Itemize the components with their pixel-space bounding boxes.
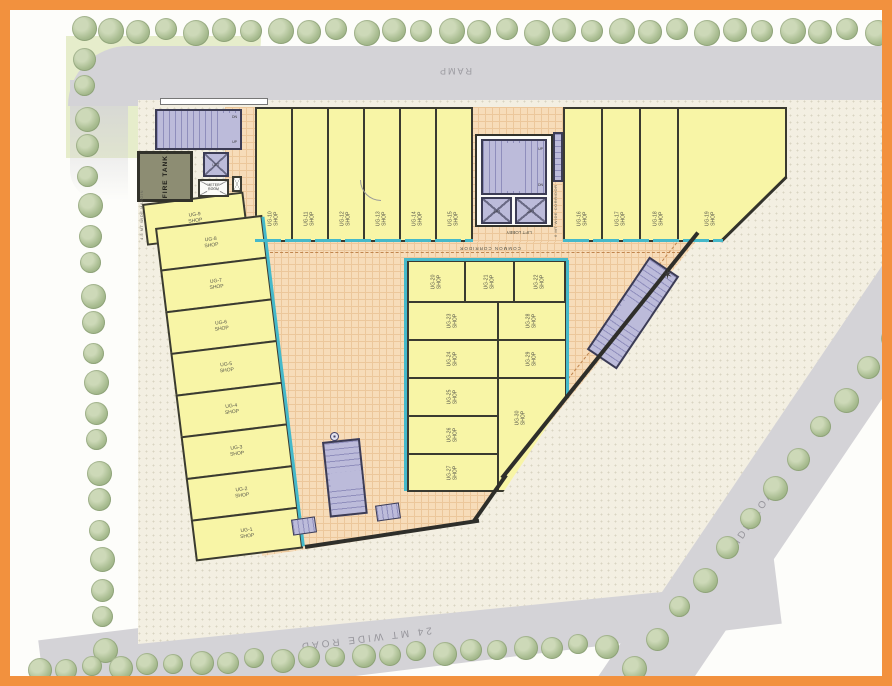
lift: LIFT [481,197,512,224]
shop-unit: UG-22 SHOP [513,260,566,303]
shop-label: UG-30 SHOP [516,410,528,425]
shop-unit: UG-17 SHOP [601,107,641,242]
shop-label: UG-25 SHOP [447,390,459,405]
shop-label: UG-28 SHOP [526,314,538,329]
lift-label: LIFT [212,163,219,167]
shop-label: UG-11 SHOP [304,211,316,225]
shop-unit: UG-21 SHOP [464,260,515,303]
shop-label: UG-6 SHOP [214,320,229,333]
tree-icon [92,606,113,627]
lift-lobby-label: LIFT LOBBY [488,230,550,235]
tree-icon [666,18,688,40]
stair-dn-label: DN [232,115,237,119]
stair-up-label: UP [232,140,237,144]
stair-dn-label: DN [538,183,543,187]
entry-steps [291,516,317,535]
tree-icon [638,20,662,44]
tree-icon [28,658,52,682]
shop-label: UG-4 SHOP [224,403,239,416]
shop-label: UG-7 SHOP [209,278,224,291]
tree-icon [646,628,669,651]
shop-unit: UG-11 SHOP [291,107,329,242]
shop-label: UG-12 SHOP [340,211,352,226]
tree-icon [581,20,603,42]
courtyard-staircase [322,438,368,518]
shop-label: UG-8 SHOP [204,237,219,250]
tree-icon [183,20,209,46]
shop-unit: UG-26 SHOP [407,415,499,455]
left-margin-label: 4.5 MT WIDE MARGIN [139,160,144,240]
tree-icon [808,20,832,44]
fire-tank: FIRE TANK [137,151,193,202]
tree-icon [716,536,739,559]
shop-label: UG-10 SHOP [268,211,280,226]
tree-icon [55,659,77,681]
projection-line-top [265,252,680,253]
tree-icon [83,343,104,364]
tree-icon [109,656,133,680]
shop-unit: UG-30 SHOP [497,377,567,492]
shop-unit: UG-19 SHOP [677,107,787,242]
shop-label: UG-19 SHOP [705,211,717,226]
middle-shop-cluster: UG-20 SHOP UG-21 SHOP UG-22 SHOP UG-23 S… [406,260,568,492]
tree-icon [73,48,96,71]
tree-icon [694,20,720,46]
tree-icon [622,656,647,681]
storefront-line [404,258,568,261]
tree-icon [85,402,108,425]
tree-icon [90,547,115,572]
shop-unit: UG-23 SHOP [407,301,499,341]
tree-icon [240,20,262,42]
floor-plan: RAMP 24 MT WIDE ROAD 24 MT WIDE ROAD UG-… [0,0,892,686]
tree-icon [88,488,111,511]
tree-icon [84,370,109,395]
tree-icon [271,649,295,673]
service-box [232,176,242,192]
shop-label: UG-16 SHOP [577,211,589,226]
shop-unit: UG-28 SHOP [497,301,567,341]
tree-icon [82,656,102,676]
shop-label: UG-23 SHOP [447,314,459,329]
tree-icon [79,225,102,248]
tree-icon [865,20,891,46]
tree-icon [325,647,345,667]
top-road [68,46,892,106]
storefront-line [404,260,407,491]
tree-icon [834,388,859,413]
shop-label: UG-22 SHOP [534,274,546,289]
tree-icon [89,520,110,541]
tree-icon [723,18,747,42]
meter-room-label: METER ROOM [207,184,219,192]
tree-icon [78,193,103,218]
tree-icon [80,252,101,273]
tree-icon [87,461,112,486]
tree-icon [524,20,550,46]
tree-icon [77,166,98,187]
side-corridor-label: 6 MT WIDE CORRIDOR [553,142,558,237]
meter-room: METER ROOM [198,179,229,197]
storefront-line [255,239,473,242]
tree-icon [86,429,107,450]
shop-label: UG-26 SHOP [447,428,459,443]
tree-icon [669,596,690,617]
stair-landing [507,143,525,191]
storefront-line [566,260,569,398]
tree-icon [693,568,718,593]
shop-label: UG-5 SHOP [219,362,234,375]
tree-icon [487,640,507,660]
shop-unit: UG-13 SHOP [363,107,401,242]
shop-label: UG-24 SHOP [447,352,459,367]
shop-label: UG-21 SHOP [484,274,496,289]
shop-unit: UG-12 SHOP [327,107,365,242]
tree-icon [74,75,95,96]
shop-label: UG-15 SHOP [448,211,460,226]
common-corridor-label: COMMON CORRIDOR [430,246,550,251]
tree-icon [857,356,880,379]
lift: LIFT [203,152,229,177]
ramp-road-label: RAMP [438,66,472,76]
tree-icon [82,311,105,334]
tree-icon [410,20,432,42]
shop-unit: UG-16 SHOP [563,107,603,242]
tree-icon [552,18,576,42]
lift-label: LIFT [527,209,534,213]
shop-label: UG-3 SHOP [229,445,244,458]
tree-icon [467,20,491,44]
tree-icon [881,328,892,349]
fire-tank-label: FIRE TANK [162,155,169,198]
tree-icon [836,18,858,40]
center-staircase: UP DN [481,139,547,195]
shop-unit: UG-29 SHOP [497,339,567,379]
shop-label: UG-1 SHOP [239,528,254,541]
shop-label: UG-17 SHOP [615,211,627,226]
tree-icon [787,448,810,471]
dimension-strip [160,98,268,105]
tree-icon [595,635,619,659]
shop-unit: UG-24 SHOP [407,339,499,379]
tree-icon [163,654,183,674]
tree-icon [810,416,831,437]
shop-label: UG-13 SHOP [376,211,388,226]
star-marker-icon: ✶ [662,268,673,281]
shop-unit: UG-14 SHOP [399,107,437,242]
entry-steps [375,502,401,521]
tree-icon [382,18,406,42]
tree-icon [568,634,588,654]
tree-icon [780,18,806,44]
tree-icon [763,476,788,501]
tree-icon [190,651,214,675]
tree-icon [751,20,773,42]
shop-unit: UG-18 SHOP [639,107,679,242]
shop-label: UG-2 SHOP [234,487,249,500]
tree-icon [91,579,114,602]
tree-icon [98,18,124,44]
tree-icon [298,646,320,668]
tree-icon [433,642,457,666]
shop-unit: UG-20 SHOP [407,260,466,303]
tree-icon [496,18,518,40]
lift: LIFT [515,197,547,224]
tree-icon [212,18,236,42]
entry-marker [330,432,339,441]
tree-icon [460,639,482,661]
tree-icon [75,107,100,132]
tree-icon [81,284,106,309]
tree-icon [541,637,563,659]
tree-icon [740,508,761,529]
lift-label: LIFT [493,209,500,213]
tree-icon [155,18,177,40]
left-staircase: DN UP [155,109,242,150]
storefront-line [563,239,723,242]
tree-icon [439,18,465,44]
tree-icon [297,20,321,44]
stair-up-label: UP [538,147,543,151]
shop-label: UG-18 SHOP [653,211,665,226]
tree-icon [514,636,538,660]
shop-unit: UG-25 SHOP [407,377,499,417]
tree-icon [609,18,635,44]
tree-icon [325,18,347,40]
tree-icon [217,652,239,674]
shop-label: UG-29 SHOP [526,352,538,367]
shop-label: UG-27 SHOP [447,465,459,480]
shop-unit: UG-27 SHOP [407,453,499,492]
shop-unit: UG-15 SHOP [435,107,473,242]
tree-icon [354,20,380,46]
shop-label: UG-14 SHOP [412,211,424,226]
shop-label: UG-20 SHOP [431,274,443,289]
tree-icon [352,644,376,668]
tree-icon [268,18,294,44]
tree-icon [72,16,97,41]
tree-icon [76,134,99,157]
stair-landing [329,470,362,489]
